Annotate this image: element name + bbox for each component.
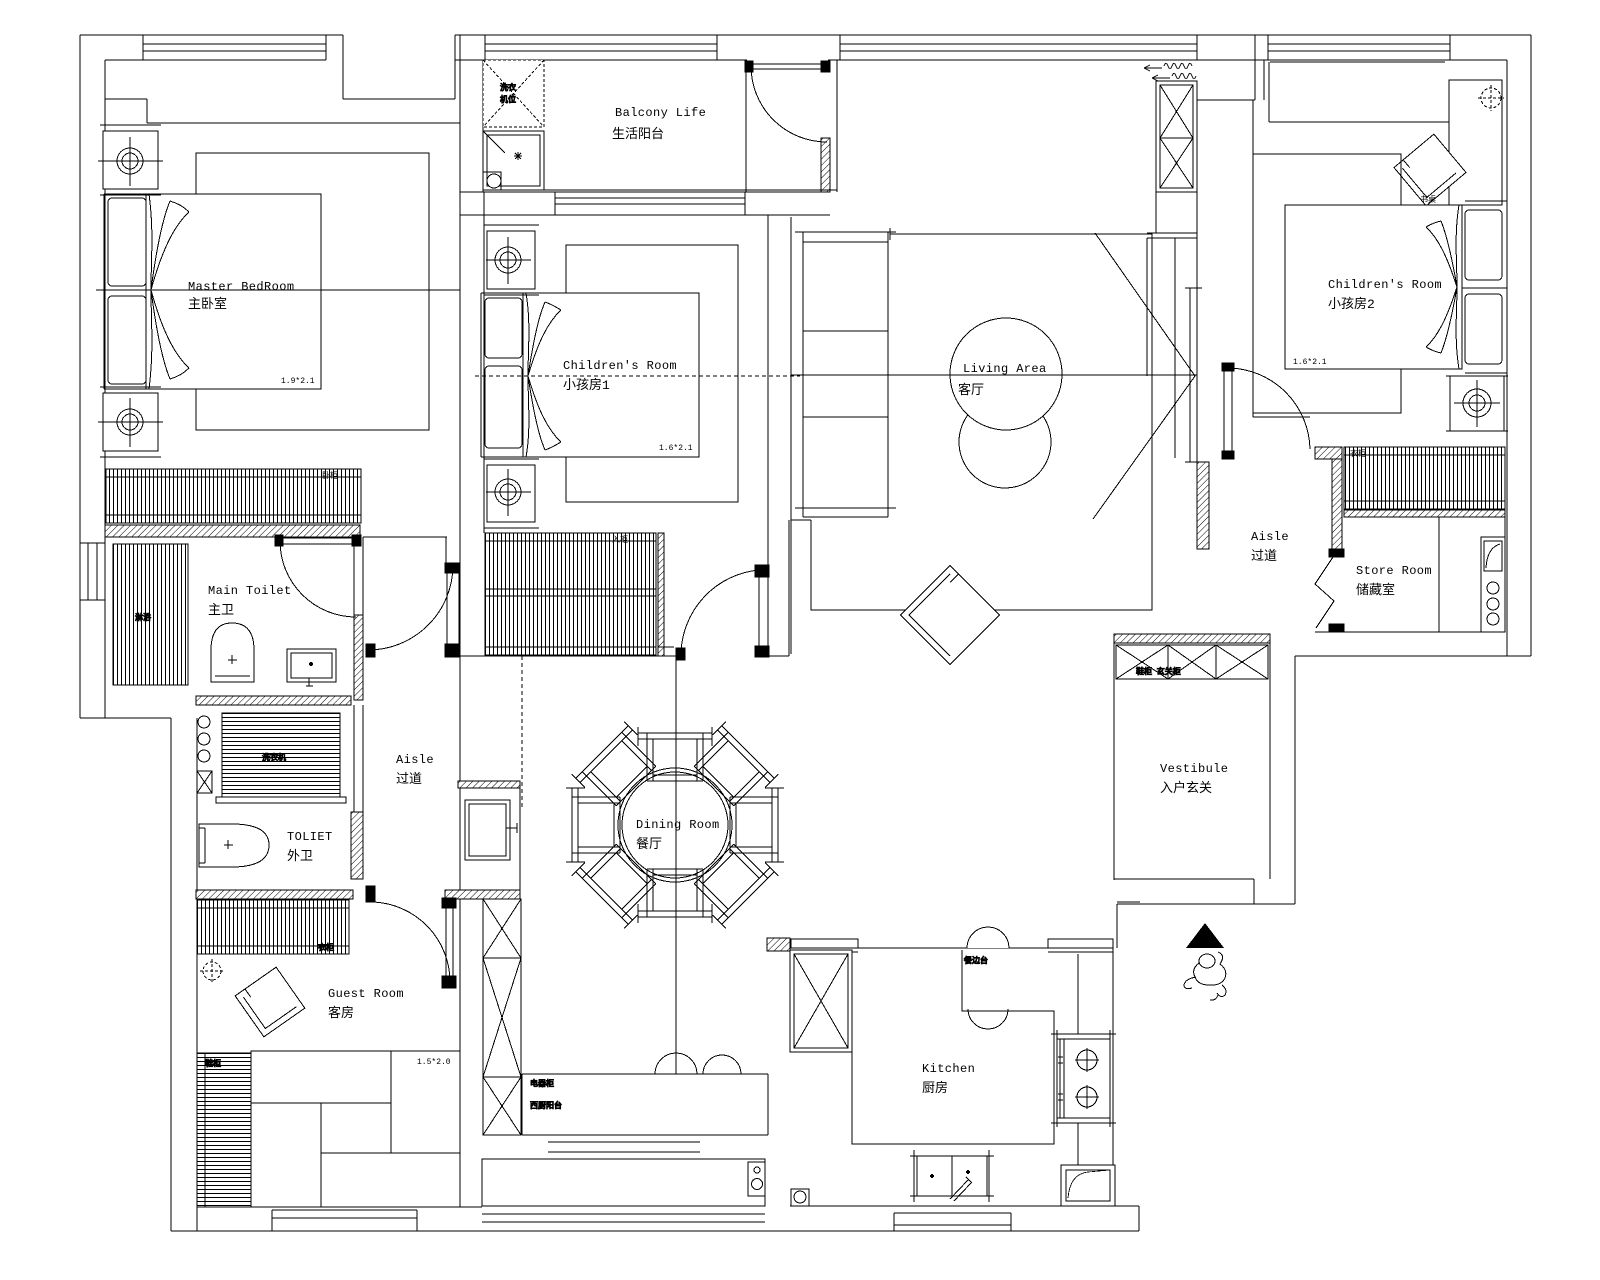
svg-text:客厅: 客厅 xyxy=(958,382,984,398)
svg-text:1.6*2.1: 1.6*2.1 xyxy=(1293,358,1327,367)
svg-text:过道: 过道 xyxy=(1251,549,1277,564)
svg-text:Dining Room: Dining Room xyxy=(636,818,720,832)
svg-text:餐边台: 餐边台 xyxy=(964,955,988,966)
svg-text:洗衣: 洗衣 xyxy=(500,82,516,93)
svg-text:洗衣机: 洗衣机 xyxy=(262,752,286,763)
svg-text:Vestibule: Vestibule xyxy=(1160,762,1228,776)
svg-text:TOLIET: TOLIET xyxy=(287,830,333,844)
svg-text:西厨阳台: 西厨阳台 xyxy=(530,1100,562,1111)
svg-text:Children's Room: Children's Room xyxy=(563,359,677,373)
svg-text:Guest Room: Guest Room xyxy=(328,987,404,1001)
svg-text:书桌: 书桌 xyxy=(1420,194,1436,205)
svg-text:机位: 机位 xyxy=(500,94,516,105)
svg-text:Kitchen: Kitchen xyxy=(922,1062,975,1076)
svg-text:入柜: 入柜 xyxy=(612,534,628,545)
svg-text:生活阳台: 生活阳台 xyxy=(612,127,664,142)
svg-text:Living Area: Living Area xyxy=(963,362,1047,376)
svg-text:储藏室: 储藏室 xyxy=(1356,582,1395,598)
svg-text:Balcony Life: Balcony Life xyxy=(615,106,706,120)
svg-text:1.6*2.1: 1.6*2.1 xyxy=(659,444,693,453)
svg-text:入户玄关: 入户玄关 xyxy=(1160,780,1212,796)
svg-text:厨房: 厨房 xyxy=(922,1080,948,1096)
svg-text:外卫: 外卫 xyxy=(287,849,313,864)
svg-text:淋浴: 淋浴 xyxy=(135,612,151,623)
svg-text:主卧室: 主卧室 xyxy=(188,296,227,312)
svg-text:1.5*2.0: 1.5*2.0 xyxy=(417,1058,451,1067)
svg-text:Aisle: Aisle xyxy=(396,753,434,767)
svg-text:客房: 客房 xyxy=(328,1005,354,1021)
svg-text:卧柜: 卧柜 xyxy=(322,470,338,481)
svg-text:1.9*2.1: 1.9*2.1 xyxy=(281,377,315,386)
svg-text:衣柜: 衣柜 xyxy=(1350,448,1366,459)
svg-text:小孩房1: 小孩房1 xyxy=(563,377,610,393)
svg-text:小孩房2: 小孩房2 xyxy=(1328,296,1375,312)
svg-text:主卫: 主卫 xyxy=(208,603,234,618)
svg-text:Store Room: Store Room xyxy=(1356,564,1432,578)
svg-text:餐厅: 餐厅 xyxy=(636,836,662,852)
svg-text:Aisle: Aisle xyxy=(1251,530,1289,544)
svg-text:衣柜: 衣柜 xyxy=(318,942,334,953)
svg-text:过道: 过道 xyxy=(396,772,422,787)
svg-text:鞋柜 玄关柜: 鞋柜 玄关柜 xyxy=(1136,666,1181,677)
svg-text:电器柜: 电器柜 xyxy=(530,1078,554,1089)
svg-text:Master BedRoom: Master BedRoom xyxy=(188,280,294,294)
svg-text:Children's Room: Children's Room xyxy=(1328,278,1442,292)
svg-text:鞋柜: 鞋柜 xyxy=(205,1058,221,1069)
svg-text:Main Toilet: Main Toilet xyxy=(208,584,292,598)
